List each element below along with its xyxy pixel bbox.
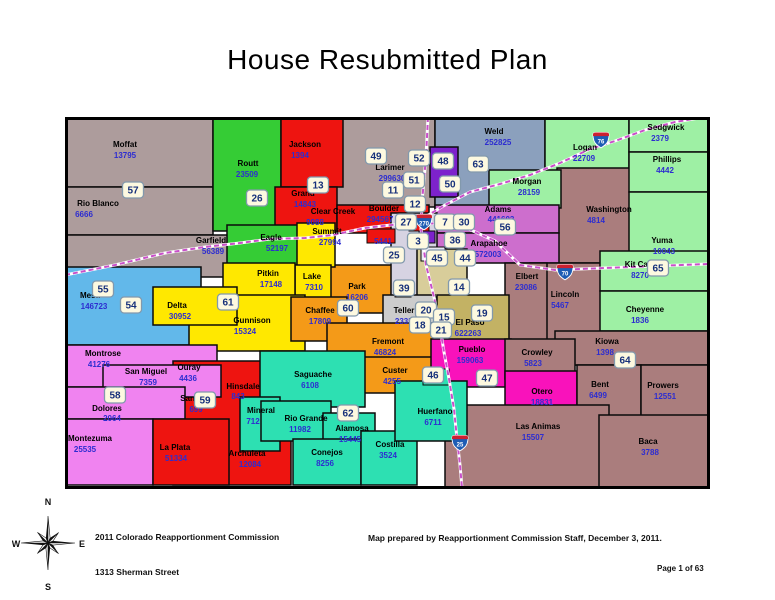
svg-text:30: 30 <box>458 218 470 229</box>
county-population-pueblo: 159063 <box>457 356 484 365</box>
county-population-baca: 3788 <box>641 448 659 457</box>
district-badge-50: 50 <box>440 176 461 192</box>
commission-address-block: 2011 Colorado Reapportionment Commission… <box>95 509 279 600</box>
county-label-archuleta: Archuleta <box>229 449 266 458</box>
svg-text:62: 62 <box>342 409 354 420</box>
address-line: 1313 Sherman Street <box>95 567 279 579</box>
svg-text:20: 20 <box>420 306 432 317</box>
county-la-plata <box>153 419 229 485</box>
county-label-routt: Routt <box>238 159 259 168</box>
svg-text:57: 57 <box>127 186 139 197</box>
county-label-saguache: Saguache <box>294 370 332 379</box>
county-population-logan: 22709 <box>573 154 596 163</box>
county-label-dolores: Dolores <box>92 404 122 413</box>
svg-text:52: 52 <box>413 154 425 165</box>
page-title: House Resubmitted Plan <box>0 44 775 76</box>
district-badge-55: 55 <box>93 281 114 297</box>
county-label-logan: Logan <box>573 143 597 152</box>
county-label-park: Park <box>348 282 366 291</box>
svg-text:47: 47 <box>481 374 493 385</box>
svg-text:39: 39 <box>398 284 410 295</box>
county-label-rio-grande: Rio Grande <box>284 414 328 423</box>
county-population-eagle: 52197 <box>266 244 289 253</box>
county-population-prowers: 12551 <box>654 392 677 401</box>
county-population-alamosa: 15445 <box>339 435 362 444</box>
county-population-san-miguel: 7359 <box>139 378 157 387</box>
svg-text:27: 27 <box>400 218 412 229</box>
county-population-bent: 6499 <box>589 391 607 400</box>
county-label-moffat: Moffat <box>113 140 137 149</box>
colorado-map-svg: Moffat13795Rio Blanco6666Garfield56389Ro… <box>65 117 710 489</box>
compass-south-label: S <box>45 582 51 592</box>
county-label-alamosa: Alamosa <box>335 424 369 433</box>
county-population-gilpin: 5441 <box>374 237 392 246</box>
address-line: 2011 Colorado Reapportionment Commission <box>95 532 279 544</box>
county-population-washington: 4814 <box>587 216 605 225</box>
county-population-morgan: 28159 <box>518 188 541 197</box>
county-population-conejos: 8256 <box>316 459 334 468</box>
county-label-las-animas: Las Animas <box>516 422 561 431</box>
district-badge-58: 58 <box>105 387 126 403</box>
county-population-archuleta: 12084 <box>239 460 262 469</box>
county-population-lincoln: 5467 <box>551 301 569 310</box>
district-badge-60: 60 <box>338 300 359 316</box>
svg-text:49: 49 <box>370 152 382 163</box>
county-label-san-miguel: San Miguel <box>125 367 167 376</box>
county-population-yuma: 10043 <box>653 247 676 256</box>
svg-text:19: 19 <box>476 309 488 320</box>
county-label-teller: Teller <box>394 306 415 315</box>
district-badge-39: 39 <box>394 280 415 296</box>
svg-text:70: 70 <box>562 272 569 278</box>
county-label-phillips: Phillips <box>653 155 682 164</box>
district-badge-61: 61 <box>218 294 239 310</box>
svg-text:63: 63 <box>472 160 484 171</box>
county-label-gunnison: Gunnison <box>233 316 270 325</box>
prepared-by-note: Map prepared by Reapportionment Commissi… <box>368 533 662 543</box>
county-label-lincoln: Lincoln <box>551 290 580 299</box>
county-population-chaffee: 17809 <box>309 317 332 326</box>
county-population-jackson: 1394 <box>291 151 309 160</box>
svg-text:46: 46 <box>427 371 439 382</box>
svg-text:270: 270 <box>419 222 430 228</box>
county-label-kiowa: Kiowa <box>595 337 619 346</box>
county-population-dolores: 2064 <box>103 414 121 423</box>
district-badge-30: 30 <box>454 214 475 230</box>
svg-text:13: 13 <box>312 181 324 192</box>
county-population-lake: 7310 <box>305 283 323 292</box>
svg-text:55: 55 <box>97 285 109 296</box>
svg-text:11: 11 <box>388 186 399 197</box>
county-prowers <box>641 365 708 417</box>
county-population-ouray: 4436 <box>179 374 197 383</box>
county-population-kit-carson: 8270 <box>631 271 649 280</box>
svg-text:64: 64 <box>619 356 631 367</box>
county-label-summit: Summit <box>312 227 342 236</box>
county-population-moffat: 13795 <box>114 151 137 160</box>
svg-text:44: 44 <box>459 254 471 265</box>
county-label-morgan: Morgan <box>513 177 542 186</box>
county-label-rio-blanco: Rio Blanco <box>77 199 119 208</box>
county-population-hinsdale: 843 <box>231 392 245 401</box>
county-population-pitkin: 17148 <box>260 280 283 289</box>
county-population-saguache: 6108 <box>301 381 319 390</box>
county-label-montrose: Montrose <box>85 349 122 358</box>
district-badge-12: 12 <box>405 196 426 212</box>
district-badge-44: 44 <box>455 250 476 266</box>
svg-text:56: 56 <box>499 223 511 234</box>
county-population-montrose: 41276 <box>88 360 111 369</box>
county-population-montezuma: 25535 <box>74 445 97 454</box>
svg-text:36: 36 <box>449 236 461 247</box>
district-badge-54: 54 <box>121 297 142 313</box>
county-population-otero: 18831 <box>531 398 554 407</box>
district-badge-27: 27 <box>396 214 417 230</box>
svg-text:25: 25 <box>457 443 464 449</box>
county-label-washington: Washington <box>586 205 632 214</box>
county-population-clear-creek: 9088 <box>306 218 324 227</box>
county-label-ouray: Ouray <box>177 363 201 372</box>
district-badge-36: 36 <box>445 232 466 248</box>
county-label-custer: Custer <box>382 366 407 375</box>
district-badge-46: 46 <box>423 367 444 383</box>
county-population-routt: 23509 <box>236 170 259 179</box>
county-label-boulder: Boulder <box>369 204 399 213</box>
county-label-fremont: Fremont <box>372 337 404 346</box>
county-population-rio-blanco: 6666 <box>75 210 93 219</box>
county-population-weld: 252825 <box>485 138 512 147</box>
county-population-custer: 4255 <box>383 377 401 386</box>
county-population-crowley: 5823 <box>524 359 542 368</box>
county-population-rio-grande: 11982 <box>289 425 311 434</box>
county-population-boulder: 294567 <box>367 215 394 224</box>
county-label-sedgwick: Sedgwick <box>648 123 685 132</box>
district-badge-45: 45 <box>427 250 448 266</box>
county-label-clear-creek: Clear Creek <box>311 207 356 216</box>
svg-text:61: 61 <box>222 298 234 309</box>
county-label-chaffee: Chaffee <box>305 306 335 315</box>
county-label-la-plata: La Plata <box>160 443 191 452</box>
svg-text:14: 14 <box>453 283 465 294</box>
county-label-adams: Adams <box>485 205 512 214</box>
county-population-elbert: 23086 <box>515 283 538 292</box>
county-label-cheyenne: Cheyenne <box>626 305 665 314</box>
svg-text:18: 18 <box>414 321 426 332</box>
county-population-fremont: 46824 <box>374 348 397 357</box>
svg-text:26: 26 <box>251 194 263 205</box>
county-population-sedgwick: 2379 <box>651 134 669 143</box>
district-badge-21: 21 <box>431 322 452 338</box>
county-label-pueblo: Pueblo <box>459 345 486 354</box>
svg-text:7: 7 <box>442 218 448 229</box>
county-label-baca: Baca <box>638 437 658 446</box>
svg-text:21: 21 <box>435 326 447 337</box>
county-label-elbert: Elbert <box>516 272 539 281</box>
county-population-phillips: 4442 <box>656 166 674 175</box>
county-label-eagle: Eagle <box>260 233 282 242</box>
svg-text:48: 48 <box>437 157 449 168</box>
county-moffat <box>67 119 213 187</box>
district-badge-48: 48 <box>433 153 454 169</box>
district-badge-56: 56 <box>495 219 516 235</box>
svg-text:50: 50 <box>444 180 456 191</box>
county-label-arapahoe: Arapahoe <box>471 239 508 248</box>
county-population-delta: 30952 <box>169 312 192 321</box>
svg-text:12: 12 <box>409 200 421 211</box>
county-label-delta: Delta <box>167 301 187 310</box>
svg-text:60: 60 <box>342 304 354 315</box>
county-population-kiowa: 1398 <box>596 348 614 357</box>
district-badge-7: 7 <box>435 214 456 230</box>
compass-rose: N S E W <box>12 494 86 594</box>
svg-text:25: 25 <box>388 251 400 262</box>
svg-text:65: 65 <box>652 264 664 275</box>
county-label-crowley: Crowley <box>521 348 553 357</box>
district-badge-65: 65 <box>648 260 669 276</box>
county-label-weld: Weld <box>485 127 504 136</box>
county-population-summit: 27994 <box>319 238 342 247</box>
county-population-el-paso: 622263 <box>455 329 482 338</box>
county-population-las-animas: 15507 <box>522 433 545 442</box>
county-label-pitkin: Pitkin <box>257 269 279 278</box>
svg-text:3: 3 <box>415 237 421 248</box>
svg-text:59: 59 <box>199 396 211 407</box>
county-population-la-plata: 51334 <box>165 454 188 463</box>
svg-text:51: 51 <box>408 176 420 187</box>
county-label-bent: Bent <box>591 380 609 389</box>
county-label-yuma: Yuma <box>651 236 673 245</box>
district-badge-64: 64 <box>615 352 636 368</box>
county-population-costilla: 3524 <box>379 451 397 460</box>
district-badge-52: 52 <box>409 150 430 166</box>
county-population-gunnison: 15324 <box>234 327 257 336</box>
district-badge-19: 19 <box>472 305 493 321</box>
map-document-page: House Resubmitted Plan Moffat13795Rio Bl… <box>0 0 775 600</box>
county-population-arapahoe: 572003 <box>475 250 502 259</box>
county-population-huerfano: 6711 <box>424 418 442 427</box>
county-label-lake: Lake <box>303 272 322 281</box>
county-label-garfield: Garfield <box>196 236 226 245</box>
district-badge-11: 11 <box>383 182 404 198</box>
compass-west-label: W <box>12 539 21 549</box>
district-badge-3: 3 <box>408 233 429 249</box>
district-badge-49: 49 <box>366 148 387 164</box>
county-label-montezuma: Montezuma <box>68 434 113 443</box>
county-label-costilla: Costilla <box>376 440 405 449</box>
district-badge-59: 59 <box>195 392 216 408</box>
district-badge-14: 14 <box>449 279 470 295</box>
county-label-mineral: Mineral <box>247 406 275 415</box>
county-label-hinsdale: Hinsdale <box>226 382 260 391</box>
county-las-animas <box>445 405 609 488</box>
compass-east-label: E <box>79 539 85 549</box>
county-population-mesa: 146723 <box>81 302 108 311</box>
district-badge-62: 62 <box>338 405 359 421</box>
colorado-map: Moffat13795Rio Blanco6666Garfield56389Ro… <box>65 117 710 489</box>
svg-text:58: 58 <box>109 391 121 402</box>
compass-north-label: N <box>45 497 52 507</box>
county-population-garfield: 56389 <box>202 247 225 256</box>
page-number: Page 1 of 63 <box>657 564 704 573</box>
district-badge-13: 13 <box>308 177 329 193</box>
compass-star <box>21 516 75 570</box>
county-label-conejos: Conejos <box>311 448 343 457</box>
county-population-cheyenne: 1836 <box>631 316 649 325</box>
svg-text:45: 45 <box>431 254 443 265</box>
county-label-huerfano: Huerfano <box>417 407 452 416</box>
county-label-otero: Otero <box>531 387 552 396</box>
county-label-prowers: Prowers <box>647 381 679 390</box>
svg-text:54: 54 <box>125 301 137 312</box>
district-badge-26: 26 <box>247 190 268 206</box>
district-badge-47: 47 <box>477 370 498 386</box>
county-population-mineral: 712 <box>246 417 260 426</box>
district-badge-18: 18 <box>410 317 431 333</box>
district-badge-25: 25 <box>384 247 405 263</box>
district-badge-57: 57 <box>123 182 144 198</box>
district-badge-51: 51 <box>404 172 425 188</box>
svg-text:76: 76 <box>598 140 605 146</box>
district-badge-63: 63 <box>468 156 489 172</box>
county-label-jackson: Jackson <box>289 140 321 149</box>
